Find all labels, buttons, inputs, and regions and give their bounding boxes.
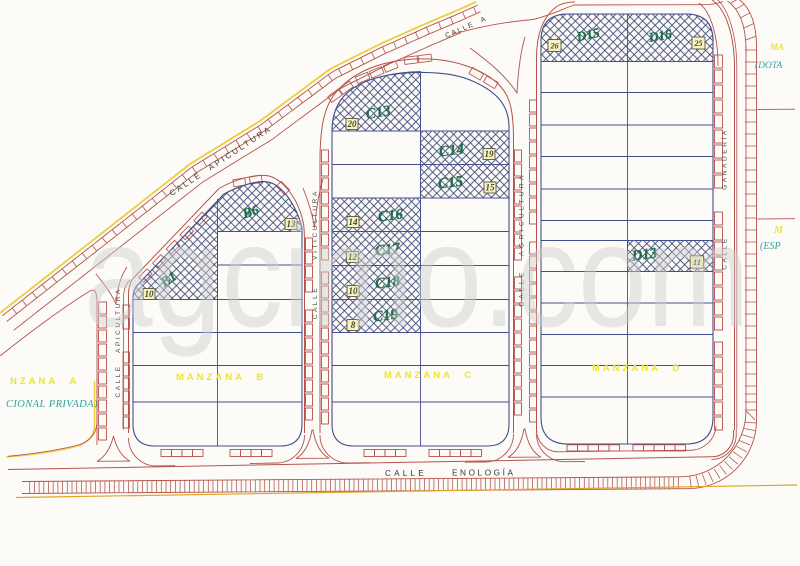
svg-text:C14: C14 — [438, 142, 465, 161]
svg-text:C15: C15 — [437, 174, 464, 193]
svg-text:ENOLOGÍA: ENOLOGÍA — [452, 468, 516, 478]
svg-text:MANZANA B: MANZANA B — [176, 372, 266, 383]
svg-text:CALLE: CALLE — [385, 469, 427, 478]
svg-text:CALLE: CALLE — [115, 364, 122, 397]
svg-text:GANADERÍA: GANADERÍA — [720, 128, 729, 190]
svg-text:26: 26 — [550, 41, 559, 50]
svg-text:(DOTA: (DOTA — [755, 60, 782, 71]
svg-text:NZANA A: NZANA A — [10, 376, 79, 387]
svg-text:19: 19 — [485, 149, 495, 159]
svg-text:20: 20 — [347, 119, 358, 129]
svg-text:MANZANA C: MANZANA C — [384, 370, 474, 381]
svg-text:MA: MA — [769, 42, 784, 52]
svg-text:agcimo.com: agcimo.com — [84, 193, 750, 358]
svg-text:15: 15 — [486, 183, 496, 193]
svg-text:(ESP: (ESP — [760, 241, 781, 252]
svg-text:CIONAL PRIVADA): CIONAL PRIVADA) — [6, 399, 98, 410]
svg-text:25: 25 — [694, 39, 703, 48]
svg-text:MANZANA D: MANZANA D — [592, 363, 682, 374]
svg-text:M: M — [773, 225, 784, 236]
